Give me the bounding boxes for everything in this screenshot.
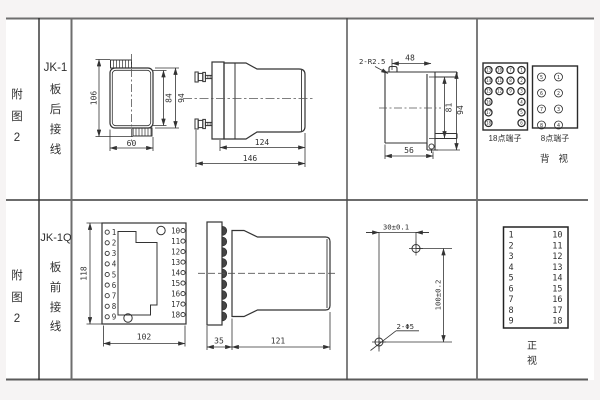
dim-60: 60 <box>127 139 137 148</box>
rear-view-label: 背视 <box>524 151 584 165</box>
row1-figure-number: 附图2 <box>10 85 24 150</box>
dim-94: 94 <box>177 93 186 103</box>
svg-text:14: 14 <box>171 268 181 277</box>
svg-text:7: 7 <box>112 292 117 301</box>
right-terminal-numbers: 10 11 12 13 14 15 16 17 18 <box>171 226 181 319</box>
left-terminal-numbers: 1 2 3 4 5 6 7 8 9 <box>112 228 117 322</box>
row1-model-label: JK-1 <box>39 62 72 74</box>
svg-text:12: 12 <box>497 89 503 94</box>
dim-48: 48 <box>405 54 415 63</box>
svg-text:10: 10 <box>497 68 503 73</box>
svg-text:9: 9 <box>509 317 514 327</box>
svg-text:14: 14 <box>486 78 492 83</box>
dim-30: 30±0.1 <box>383 223 409 232</box>
svg-text:4: 4 <box>509 263 514 273</box>
svg-text:16: 16 <box>486 99 492 104</box>
svg-text:2: 2 <box>509 241 514 251</box>
svg-text:7: 7 <box>540 107 543 113</box>
svg-text:18: 18 <box>486 121 492 126</box>
dim-100: 100±0.2 <box>434 280 443 311</box>
svg-text:3: 3 <box>557 107 560 113</box>
svg-text:3: 3 <box>112 249 117 258</box>
svg-text:13: 13 <box>486 68 492 73</box>
dim-118: 118 <box>80 266 89 281</box>
dim-106: 106 <box>90 91 99 106</box>
svg-text:5: 5 <box>112 270 117 279</box>
dim-146: 146 <box>243 154 258 163</box>
dim-102: 102 <box>137 333 152 342</box>
svg-text:15: 15 <box>486 89 492 94</box>
row1-wiring-label: 板后接线 <box>49 80 63 160</box>
svg-text:5: 5 <box>540 75 543 81</box>
dim-56: 56 <box>404 146 414 155</box>
label-18pt-terminal: 18点端子 <box>479 133 531 144</box>
svg-text:6: 6 <box>540 91 543 97</box>
svg-text:10: 10 <box>171 226 181 235</box>
row2-model-label: JK-1Q <box>36 232 76 244</box>
svg-text:14: 14 <box>552 274 562 284</box>
svg-text:9: 9 <box>112 313 117 322</box>
label-2-phi5: 2-Φ5 <box>397 322 415 331</box>
svg-text:17: 17 <box>486 110 492 115</box>
svg-text:16: 16 <box>171 289 181 298</box>
svg-text:15: 15 <box>552 284 562 294</box>
svg-text:18: 18 <box>171 310 181 319</box>
svg-text:16: 16 <box>552 295 562 305</box>
dim-121: 121 <box>271 337 286 346</box>
label-8pt-terminal: 8点端子 <box>531 133 579 144</box>
svg-text:6: 6 <box>509 284 514 294</box>
svg-text:5: 5 <box>509 274 514 284</box>
svg-text:8: 8 <box>112 302 117 311</box>
svg-text:1: 1 <box>112 228 117 237</box>
row2-wiring-label: 板前接线 <box>49 259 63 338</box>
svg-text:12: 12 <box>552 252 562 262</box>
svg-text:10: 10 <box>552 231 562 241</box>
left-column: 1 2 3 4 5 6 7 8 9 <box>509 231 514 327</box>
svg-text:3: 3 <box>509 252 514 262</box>
svg-text:7: 7 <box>509 295 514 305</box>
svg-text:13: 13 <box>171 258 180 267</box>
label-2-r2.5: 2-R2.5 <box>359 57 385 66</box>
svg-text:2: 2 <box>112 239 117 248</box>
svg-text:8: 8 <box>540 123 543 129</box>
svg-text:1: 1 <box>557 75 560 81</box>
technical-drawing-sheet: 106 84 94 60 124 146 <box>0 0 600 400</box>
svg-text:8: 8 <box>509 306 514 316</box>
dim-81: 81 <box>445 103 454 113</box>
svg-text:15: 15 <box>171 279 180 288</box>
dim-35: 35 <box>214 337 224 346</box>
svg-text:12: 12 <box>171 247 180 256</box>
svg-text:17: 17 <box>552 306 562 316</box>
svg-text:4: 4 <box>112 260 117 269</box>
dim-84: 84 <box>165 93 174 103</box>
dim-94: 94 <box>456 105 465 115</box>
svg-text:17: 17 <box>171 300 180 309</box>
svg-text:4: 4 <box>557 123 560 129</box>
table-background <box>6 18 594 380</box>
svg-text:13: 13 <box>552 263 562 273</box>
dim-124: 124 <box>255 138 270 147</box>
row2-figure-number: 附图2 <box>10 266 24 331</box>
svg-text:11: 11 <box>552 241 562 251</box>
right-column: 10 11 12 13 14 15 16 17 18 <box>552 231 562 327</box>
svg-text:11: 11 <box>497 78 503 83</box>
svg-text:6: 6 <box>112 281 117 290</box>
svg-text:1: 1 <box>509 231 514 241</box>
front-view-label: 正视 <box>501 337 563 367</box>
svg-text:11: 11 <box>171 237 180 246</box>
svg-text:18: 18 <box>552 317 562 327</box>
svg-text:2: 2 <box>557 91 560 97</box>
